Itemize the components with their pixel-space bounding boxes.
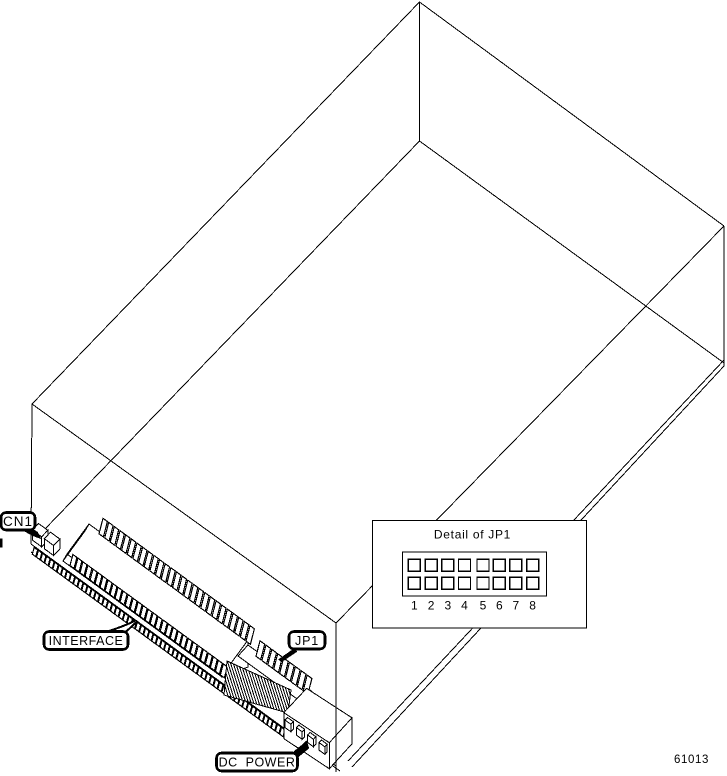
svg-text:1: 1 [411,599,418,613]
svg-text:2: 2 [428,599,435,613]
svg-text:INTERFACE: INTERFACE [49,634,124,648]
svg-text:7: 7 [513,599,520,613]
svg-text:3: 3 [445,599,452,613]
svg-text:6: 6 [496,599,503,613]
svg-text:61013: 61013 [674,754,709,766]
svg-text:CN1: CN1 [3,514,33,529]
svg-text:4: 4 [461,599,468,613]
svg-text:Detail of JP1: Detail of JP1 [434,528,511,542]
svg-text:JP1: JP1 [295,634,319,648]
svg-text:DC POWER: DC POWER [219,756,296,770]
svg-text:8: 8 [529,599,536,613]
svg-text:5: 5 [480,599,487,613]
